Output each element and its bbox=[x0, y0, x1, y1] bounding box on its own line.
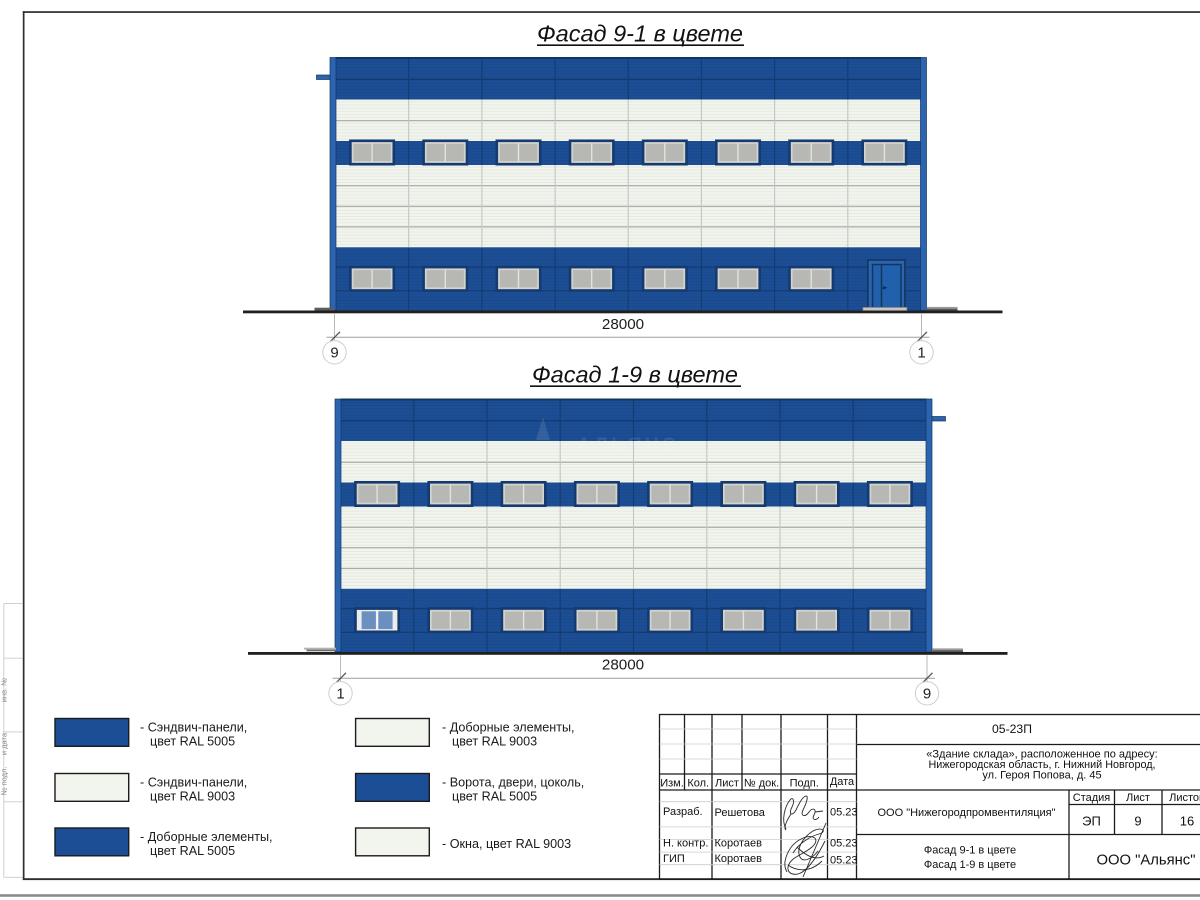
svg-text:Фасад 9-1 в цвете: Фасад 9-1 в цвете bbox=[537, 21, 743, 47]
svg-text:05.23: 05.23 bbox=[830, 838, 858, 850]
svg-text:Фасад 1-9 в цвете: Фасад 1-9 в цвете bbox=[924, 859, 1016, 871]
svg-text:05.23: 05.23 bbox=[830, 807, 858, 819]
svg-text:9: 9 bbox=[1134, 814, 1141, 829]
svg-text:ООО "Нижегородпромвентиляция": ООО "Нижегородпромвентиляция" bbox=[877, 807, 1055, 819]
svg-text:Решетова: Решетова bbox=[715, 807, 766, 819]
svg-text:Разраб.: Разраб. bbox=[663, 806, 703, 818]
svg-text:АЛЬЯНС: АЛЬЯНС bbox=[577, 435, 679, 456]
svg-text:1: 1 bbox=[917, 345, 925, 362]
svg-text:цвет RAL 9003: цвет RAL 9003 bbox=[150, 789, 235, 803]
svg-text:цвет RAL 9003: цвет RAL 9003 bbox=[452, 734, 537, 748]
svg-text:ЭП: ЭП bbox=[1082, 814, 1101, 829]
svg-text:ООО "Альянс": ООО "Альянс" bbox=[1097, 853, 1196, 869]
svg-text:Дата: Дата bbox=[830, 776, 855, 788]
svg-text:Лист: Лист bbox=[715, 778, 739, 790]
svg-text:Н. контр.: Н. контр. bbox=[663, 838, 708, 850]
svg-text:Кол.: Кол. bbox=[687, 778, 709, 790]
svg-text:Коротаев: Коротаев bbox=[715, 853, 763, 865]
svg-text:1: 1 bbox=[336, 686, 344, 703]
svg-text:9: 9 bbox=[330, 345, 338, 362]
svg-text:9: 9 bbox=[923, 686, 931, 703]
svg-text:- Доборные элементы,: - Доборные элементы, bbox=[140, 830, 273, 844]
svg-text:Фасад 1-9 в цвете: Фасад 1-9 в цвете bbox=[532, 362, 738, 388]
svg-text:цвет RAL 5005: цвет RAL 5005 bbox=[150, 844, 235, 858]
svg-text:28000: 28000 bbox=[602, 316, 644, 333]
svg-text:Подп.: Подп. bbox=[790, 778, 819, 790]
svg-text:- Сэндвич-панели,: - Сэндвич-панели, bbox=[140, 776, 247, 790]
svg-text:- Окна, цвет RAL 9003: - Окна, цвет RAL 9003 bbox=[442, 837, 571, 851]
svg-text:Лист: Лист bbox=[1126, 792, 1150, 804]
svg-text:и дата: и дата bbox=[0, 732, 9, 755]
svg-text:Фасад 9-1 в цвете: Фасад 9-1 в цвете bbox=[924, 845, 1016, 857]
svg-text:16: 16 bbox=[1180, 814, 1194, 829]
svg-text:инв. №: инв. № bbox=[0, 678, 9, 703]
svg-text:Листов: Листов bbox=[1169, 792, 1200, 804]
svg-text:- Доборные элементы,: - Доборные элементы, bbox=[442, 721, 575, 735]
svg-text:цвет RAL 5005: цвет RAL 5005 bbox=[150, 734, 235, 748]
svg-text:- Ворота, двери, цоколь,: - Ворота, двери, цоколь, bbox=[442, 776, 584, 790]
svg-text:цвет RAL 5005: цвет RAL 5005 bbox=[452, 789, 537, 803]
svg-text:Коротаев: Коротаев bbox=[715, 838, 763, 850]
svg-text:05-23П: 05-23П bbox=[992, 722, 1032, 736]
svg-text:Изм.: Изм. bbox=[660, 778, 684, 790]
svg-text:- Сэндвич-панели,: - Сэндвич-панели, bbox=[140, 721, 247, 735]
svg-text:№ подл.: № подл. bbox=[0, 766, 9, 795]
svg-text:Стадия: Стадия bbox=[1073, 792, 1111, 804]
svg-text:№ док.: № док. bbox=[744, 778, 779, 790]
svg-text:ГИП: ГИП bbox=[663, 853, 685, 865]
svg-text:28000: 28000 bbox=[602, 657, 644, 674]
svg-text:05.23: 05.23 bbox=[830, 855, 858, 867]
svg-text:ул. Героя Попова, д. 45: ул. Героя Попова, д. 45 bbox=[982, 770, 1101, 782]
